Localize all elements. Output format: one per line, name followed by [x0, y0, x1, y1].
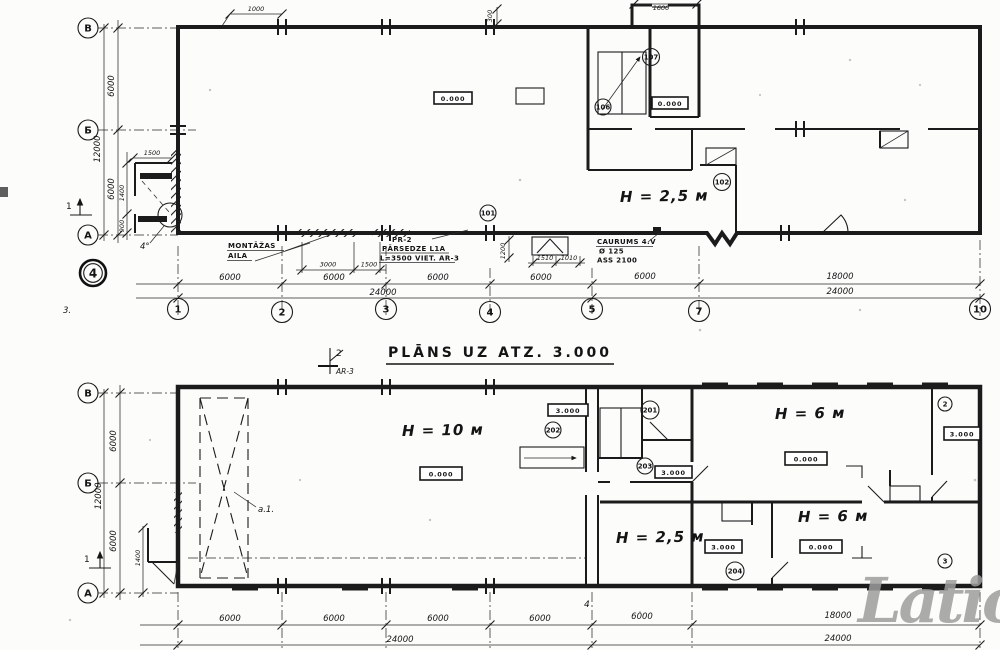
upper-left-annex: 1500 4°: [129, 149, 183, 252]
room-height-label: H = 6 м: [775, 404, 846, 423]
grid-row-label: Б: [84, 126, 92, 137]
section-arrow-label: 1: [84, 555, 90, 565]
hole-mark: [653, 227, 661, 235]
elevation-value: 0.000: [441, 95, 466, 103]
room-number: 202: [546, 427, 561, 435]
note-text: AILA: [228, 252, 248, 260]
dim-text: 6000: [427, 273, 449, 283]
dim-text: 1400: [134, 550, 142, 567]
latio-watermark-logo: Latio: [856, 564, 1000, 637]
room-height-label: H = 6 м: [798, 507, 869, 526]
sheet-number: 4: [89, 267, 97, 281]
lower-room-bubbles: 201 202 203 204 2 3: [545, 397, 952, 580]
note-text: PĀRSEDZE L1A: [382, 244, 446, 253]
note-text: Ø 125: [599, 248, 624, 256]
cut-sheet: AR-3: [335, 367, 354, 376]
dim-text: 6000: [427, 614, 449, 624]
dim-text: 1000: [248, 5, 265, 13]
upper-floor-plan: В Б А 6000 6000 12000 1400 900 1: [63, 0, 991, 323]
elevation-value: 0.000: [429, 471, 454, 479]
dim-text: 6000: [219, 273, 241, 283]
dim-text: 6000: [219, 614, 241, 624]
section-arrow-label: 1: [66, 202, 72, 212]
grid-col-label: 1: [175, 305, 182, 316]
grid-col-label: 10: [973, 305, 987, 316]
dim-text: 12000: [94, 482, 104, 509]
corner-mark: 3.: [63, 306, 71, 316]
dim-text: 6000: [631, 612, 653, 622]
dim-text: 18000: [826, 272, 853, 282]
grid-row-label: А: [84, 589, 92, 600]
room-number: 203: [638, 463, 653, 471]
note-text: CAURUMS 4.V: [597, 238, 656, 246]
upper-bottom-dimensions: 6000 6000 6000 6000 6000 18000 24000 240…: [136, 240, 985, 316]
dim-text: 1500: [361, 261, 378, 269]
room-number: 201: [643, 407, 658, 415]
dim-text: 6000: [634, 272, 656, 282]
room-height-label: H = 10 м: [402, 421, 484, 440]
grid-col-label: 7: [696, 307, 703, 318]
hand-mark: 4: [584, 600, 590, 610]
room-number: 106: [596, 104, 611, 112]
upper-building-walls: [170, 5, 980, 244]
dim-text: 900: [118, 220, 126, 232]
grid-row-label: В: [84, 389, 92, 400]
dim-text: 1400: [118, 185, 126, 202]
detail-mark: 4°: [140, 242, 150, 252]
cut-number: 2: [336, 349, 342, 359]
note-text: ASS 2100: [597, 257, 637, 265]
grid-col-label: 3: [383, 305, 390, 316]
dim-text: 24000: [369, 288, 396, 298]
note-text: MONTĀŽAS: [228, 241, 276, 250]
dim-text: 1200: [499, 243, 507, 260]
lower-floor-plan: В Б А 6000 6000 12000 1400 1: [78, 379, 985, 650]
dim-text: 24000: [824, 634, 851, 644]
elevation-value: 3.000: [711, 544, 736, 552]
dim-text: 1600: [653, 4, 670, 12]
room-number: 204: [728, 568, 743, 576]
note-text: PR-2: [392, 236, 412, 244]
upper-grid-cols: 1 2 3 4 5 7 10: [168, 299, 991, 323]
room-number: 107: [644, 54, 659, 62]
dim-text: 300: [486, 10, 494, 22]
room-height-label: H = 2,5 м: [616, 527, 705, 547]
montage-dims: 3000 1500: [296, 242, 386, 275]
grid-row-label: Б: [84, 479, 92, 490]
dim-text: 6000: [109, 430, 119, 452]
dim-text: 1510: [537, 254, 554, 262]
elevation-value: 3.000: [661, 469, 686, 477]
upper-small-stairs: [516, 88, 908, 165]
sheet-stamp: 4: [80, 260, 106, 286]
elevation-value: 0.000: [794, 456, 819, 464]
dim-text: 6000: [323, 614, 345, 624]
room-number: 102: [715, 179, 730, 187]
elevation-value: 3.000: [950, 431, 975, 439]
dim-text: 24000: [826, 287, 853, 297]
grid-row-label: В: [84, 24, 92, 35]
lower-left-annex: [148, 528, 178, 584]
dim-text: 6000: [323, 273, 345, 283]
elevation-value: 3.000: [556, 407, 581, 415]
blueprint-drawing: В Б А 6000 6000 12000 1400 900 1: [0, 0, 1000, 650]
room-number: 2: [943, 401, 948, 409]
upper-left-dimensions: 6000 6000 12000 1400 900: [93, 20, 132, 243]
upper-top-dimensions: 1000 300 1600: [222, 0, 702, 29]
grid-col-label: 4: [487, 308, 494, 319]
dim-text: 6000: [529, 614, 551, 624]
dim-text: 6000: [530, 273, 552, 283]
elevation-value: 0.000: [658, 100, 683, 108]
grid-row-label: А: [84, 231, 92, 242]
elevation-value: 0.000: [809, 544, 834, 552]
dim-text: 24000: [386, 635, 413, 645]
entry-pit: 1200 1510 1010: [499, 236, 585, 268]
grid-col-label: 2: [279, 308, 286, 319]
scan-noise: [0, 59, 976, 621]
note-caurums: CAURUMS 4.V Ø 125 ASS 2100: [596, 233, 659, 265]
drawing-title-block: PLĀNS UZ ATZ. 3.000 2 AR-3: [318, 343, 614, 376]
crane-label: a.1.: [258, 505, 274, 515]
room-height-label: H = 2,5 м: [620, 186, 709, 206]
scanned-blueprint-page: В Б А 6000 6000 12000 1400 900 1: [0, 0, 1000, 650]
section-cut-mark: 2 AR-3: [318, 348, 354, 376]
drawing-title: PLĀNS UZ ATZ. 3.000: [388, 343, 612, 361]
dim-text: 3000: [320, 261, 337, 269]
room-number: 101: [481, 210, 496, 218]
dim-text: 6000: [107, 178, 117, 200]
dim-text: 1500: [144, 149, 161, 157]
grid-col-label: 5: [589, 305, 596, 316]
lower-stairs: [520, 408, 920, 521]
dim-text: 1010: [561, 254, 578, 262]
dim-text: 6000: [109, 530, 119, 552]
lower-section-arrow: 1: [84, 552, 111, 568]
door-swing: [822, 215, 848, 233]
dim-text: 6000: [107, 75, 117, 97]
crane-zone: a.1.: [200, 398, 274, 578]
note-text: L=3500 VIET. AR-3: [380, 255, 459, 263]
upper-section-arrow: 1: [66, 199, 92, 215]
dim-text: 18000: [824, 611, 851, 621]
dim-text: 12000: [93, 135, 103, 162]
